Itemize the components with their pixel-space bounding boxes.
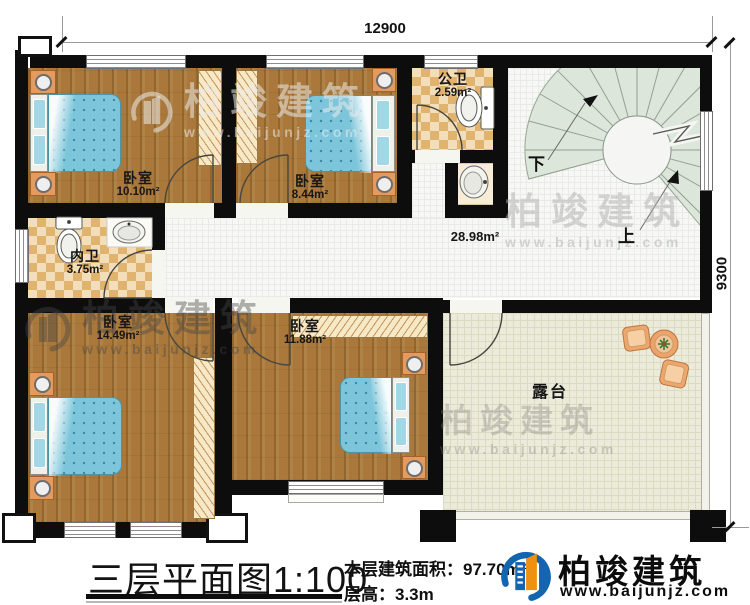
- terrace-chair: [659, 359, 690, 389]
- stair-arrow-down: [583, 95, 598, 107]
- terrace-table: [650, 330, 678, 358]
- floor-height-text: 层高：3.3m: [344, 580, 434, 605]
- hall-area-label: 28.98m²: [420, 230, 530, 245]
- room-name: 公卫: [398, 71, 508, 87]
- inner-bath-label: 内卫 3.75m²: [30, 248, 140, 277]
- dim-height-label: 9300: [714, 244, 731, 304]
- sink-inner: [107, 218, 152, 247]
- room-area: 8.44m²: [255, 189, 365, 202]
- room-name: 卧室: [63, 314, 173, 330]
- title-underline-thin: [86, 601, 342, 603]
- stairs-down-label: 下: [528, 150, 545, 175]
- bedroom4-label: 卧室 11.88m²: [250, 318, 360, 347]
- room-area: 14.49m²: [63, 330, 173, 343]
- room-area: 3.75m²: [30, 264, 140, 277]
- room-name: 卧室: [83, 170, 193, 186]
- bedroom2-label: 卧室 8.44m²: [255, 173, 365, 202]
- brand-logo-icon: [498, 548, 552, 602]
- stair-leaders: [548, 103, 673, 230]
- title-underline: [86, 594, 342, 599]
- bedroom3-label: 卧室 14.49m²: [63, 314, 173, 343]
- brand-website: www.baijunjz.com: [560, 583, 730, 601]
- dim-line-top: [62, 42, 712, 43]
- bedroom1-label: 卧室 10.10m²: [83, 170, 193, 199]
- dim-width-label: 12900: [330, 20, 440, 37]
- terrace-chair: [622, 324, 651, 351]
- room-area: 11.88m²: [250, 334, 360, 347]
- room-area: 2.59m²: [398, 87, 508, 100]
- room-name: 露台: [495, 384, 605, 402]
- dim-ext-left: [62, 16, 63, 52]
- public-bath-label: 公卫 2.59m²: [398, 71, 508, 100]
- room-name: 卧室: [255, 173, 365, 189]
- room-name: 内卫: [30, 248, 140, 264]
- dim-ext-right: [712, 16, 713, 52]
- room-area: 10.10m²: [83, 186, 193, 199]
- sink-alcove: [460, 166, 488, 198]
- floor-plan-page: 柏竣建筑 www.baijunjz.com 柏竣建筑 www.baijunjz.…: [0, 0, 750, 605]
- room-area: 28.98m²: [420, 230, 530, 245]
- room-name: 卧室: [250, 318, 360, 334]
- stairs-up-label: 上: [618, 222, 635, 247]
- terrace-label: 露台: [495, 384, 605, 402]
- stair-arrow-up: [667, 170, 679, 184]
